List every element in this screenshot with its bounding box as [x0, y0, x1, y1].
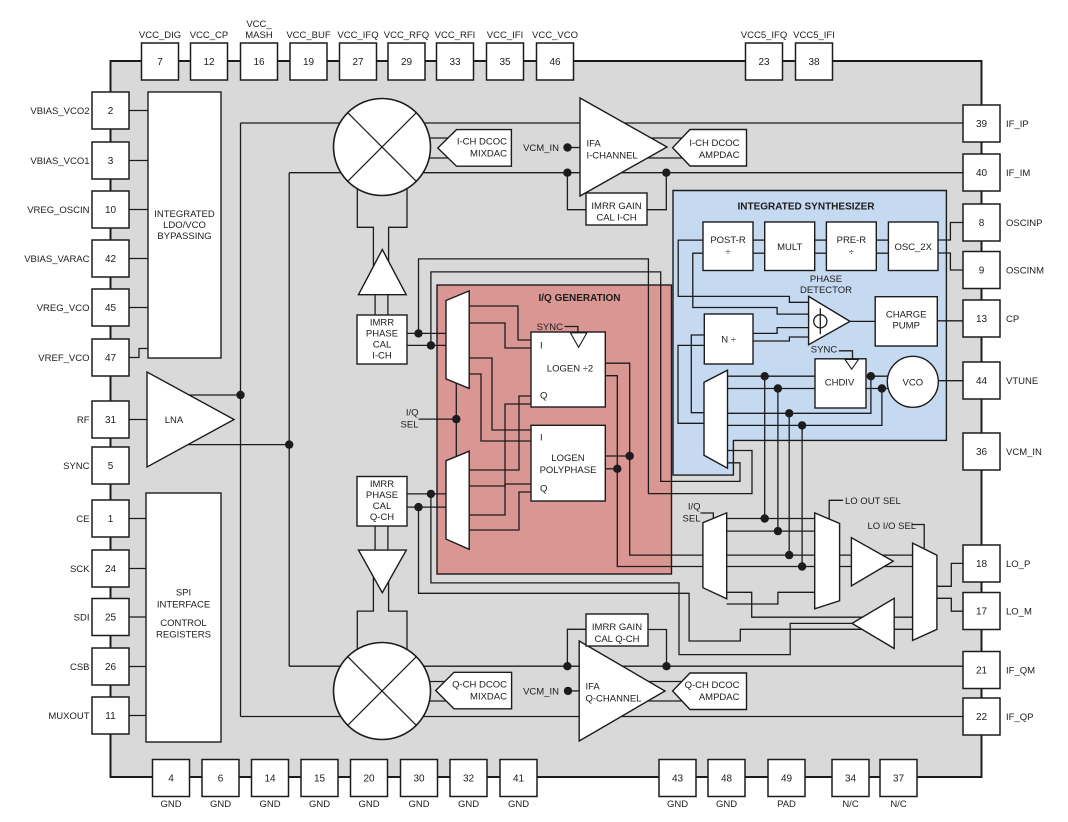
svg-text:SYNC: SYNC [537, 322, 564, 333]
svg-text:36: 36 [976, 447, 988, 458]
svg-text:VCC_RFQ: VCC_RFQ [384, 30, 429, 41]
svg-text:LO I/O SEL: LO I/O SEL [868, 521, 917, 532]
svg-text:IMRR GAIN: IMRR GAIN [591, 201, 641, 212]
svg-text:CONTROL: CONTROL [160, 618, 206, 629]
svg-text:VCC5_IFI: VCC5_IFI [793, 30, 835, 41]
svg-text:CE: CE [76, 514, 89, 525]
svg-text:VCM_IN: VCM_IN [523, 687, 559, 698]
svg-text:CAL: CAL [373, 340, 391, 351]
svg-text:LOGEN ÷2: LOGEN ÷2 [547, 364, 593, 375]
svg-text:VREG_VCO: VREG_VCO [37, 303, 90, 314]
svg-text:DETECTOR: DETECTOR [800, 285, 852, 296]
svg-text:POLYPHASE: POLYPHASE [540, 465, 597, 476]
svg-text:47: 47 [105, 353, 117, 364]
svg-text:OSCINM: OSCINM [1006, 266, 1044, 277]
svg-text:8: 8 [979, 218, 985, 229]
svg-text:34: 34 [845, 774, 857, 785]
svg-text:I-CH DCOC: I-CH DCOC [457, 137, 507, 148]
svg-text:GND: GND [408, 799, 429, 810]
svg-text:GND: GND [667, 799, 688, 810]
svg-text:I/Q: I/Q [406, 408, 419, 419]
svg-text:IF_QM: IF_QM [1006, 666, 1035, 677]
svg-text:N/C: N/C [890, 799, 907, 810]
svg-text:46: 46 [549, 57, 561, 68]
svg-text:VBIAS_VARAC: VBIAS_VARAC [24, 254, 89, 265]
svg-text:VTUNE: VTUNE [1006, 376, 1038, 387]
svg-text:17: 17 [976, 607, 988, 618]
svg-text:CSB: CSB [70, 662, 90, 673]
svg-text:IF_IM: IF_IM [1006, 168, 1030, 179]
svg-text:48: 48 [721, 774, 733, 785]
svg-text:BYPASSING: BYPASSING [157, 231, 211, 242]
svg-text:13: 13 [976, 314, 988, 325]
svg-text:IMRR: IMRR [370, 318, 394, 329]
svg-text:INTERFACE: INTERFACE [157, 600, 210, 611]
svg-text:CAL Q-CH: CAL Q-CH [594, 634, 639, 645]
svg-text:PHASE: PHASE [366, 490, 398, 501]
svg-text:Q: Q [540, 391, 547, 402]
svg-text:SEL: SEL [401, 420, 419, 431]
svg-text:VREF_VCO: VREF_VCO [38, 353, 89, 364]
svg-text:45: 45 [105, 303, 117, 314]
svg-text:23: 23 [758, 57, 770, 68]
svg-text:LOGEN: LOGEN [551, 453, 584, 464]
svg-text:INTEGRATED SYNTHESIZER: INTEGRATED SYNTHESIZER [737, 202, 875, 213]
svg-text:IMRR: IMRR [370, 479, 394, 490]
svg-text:14: 14 [264, 774, 276, 785]
svg-text:11: 11 [105, 711, 116, 722]
svg-text:PAD: PAD [777, 799, 796, 810]
svg-text:PUMP: PUMP [892, 321, 919, 332]
svg-text:SYNC: SYNC [63, 461, 90, 472]
svg-text:VCC_CP: VCC_CP [190, 30, 229, 41]
svg-text:40: 40 [976, 168, 988, 179]
svg-text:SPI: SPI [176, 588, 191, 599]
svg-text:Q-CH DCOC: Q-CH DCOC [452, 680, 507, 691]
svg-text:37: 37 [893, 774, 905, 785]
svg-text:19: 19 [303, 57, 315, 68]
svg-text:44: 44 [976, 376, 988, 387]
svg-text:MIXDAC: MIXDAC [470, 692, 507, 703]
svg-text:5: 5 [108, 461, 114, 472]
svg-text:VCC5_IFQ: VCC5_IFQ [741, 30, 787, 41]
svg-text:3: 3 [108, 156, 114, 167]
svg-text:4: 4 [168, 774, 174, 785]
svg-text:MULT: MULT [777, 242, 802, 253]
svg-text:I-CH DCOC: I-CH DCOC [689, 138, 739, 149]
svg-text:MUXOUT: MUXOUT [48, 711, 89, 722]
svg-text:VCC_IFQ: VCC_IFQ [337, 30, 378, 41]
svg-text:SEL: SEL [683, 514, 701, 525]
svg-text:VREG_OSCIN: VREG_OSCIN [27, 205, 89, 216]
svg-text:7: 7 [157, 57, 163, 68]
svg-text:VCC_BUF: VCC_BUF [286, 30, 331, 41]
svg-text:PHASE: PHASE [366, 329, 398, 340]
svg-text:1: 1 [108, 514, 114, 525]
svg-text:Q-CH DCOC: Q-CH DCOC [685, 680, 740, 691]
svg-text:REGISTERS: REGISTERS [156, 630, 211, 641]
svg-text:AMPDAC: AMPDAC [699, 150, 740, 161]
svg-text:GND: GND [309, 799, 330, 810]
svg-text:29: 29 [401, 57, 413, 68]
svg-text:CHARGE: CHARGE [886, 310, 927, 321]
svg-text:VCM_IN: VCM_IN [1006, 447, 1042, 458]
svg-text:IF_QP: IF_QP [1006, 712, 1033, 723]
svg-text:I: I [540, 433, 543, 444]
svg-text:MASH: MASH [245, 30, 273, 41]
svg-text:CAL: CAL [373, 501, 391, 512]
svg-text:38: 38 [808, 57, 820, 68]
svg-text:VBIAS_VCO2: VBIAS_VCO2 [30, 106, 89, 117]
svg-text:SYNC: SYNC [811, 345, 838, 356]
svg-text:VBIAS_VCO1: VBIAS_VCO1 [30, 156, 89, 167]
svg-text:I: I [540, 341, 543, 352]
svg-text:15: 15 [314, 774, 326, 785]
svg-text:VCC_DIG: VCC_DIG [139, 30, 181, 41]
svg-text:GND: GND [458, 799, 479, 810]
svg-text:18: 18 [976, 559, 988, 570]
svg-text:SCK: SCK [70, 564, 90, 575]
svg-text:21: 21 [976, 666, 988, 677]
svg-text:RF: RF [77, 415, 90, 426]
svg-text:IFA: IFA [586, 681, 601, 692]
svg-text:43: 43 [672, 774, 684, 785]
svg-text:24: 24 [105, 564, 117, 575]
svg-text:26: 26 [105, 662, 117, 673]
svg-text:CHDIV: CHDIV [825, 378, 855, 389]
svg-text:I/Q: I/Q [688, 502, 701, 513]
svg-text:25: 25 [105, 613, 117, 624]
svg-text:SDI: SDI [74, 613, 90, 624]
svg-text:÷: ÷ [849, 247, 854, 258]
svg-text:GND: GND [160, 799, 181, 810]
svg-text:VCC_RFI: VCC_RFI [435, 30, 476, 41]
svg-text:27: 27 [352, 57, 364, 68]
svg-text:MIXDAC: MIXDAC [470, 149, 507, 160]
svg-text:I-CHANNEL: I-CHANNEL [587, 150, 638, 161]
svg-text:LO_P: LO_P [1006, 559, 1030, 570]
svg-text:VCM_IN: VCM_IN [523, 143, 559, 154]
svg-text:31: 31 [105, 415, 117, 426]
svg-text:10: 10 [105, 205, 117, 216]
svg-text:VCO: VCO [903, 378, 924, 389]
svg-text:LDO/VCO: LDO/VCO [163, 220, 206, 231]
svg-text:N/C: N/C [842, 799, 859, 810]
svg-text:VCC_IFI: VCC_IFI [487, 30, 523, 41]
svg-text:20: 20 [363, 774, 375, 785]
svg-text:I-CH: I-CH [372, 351, 392, 362]
svg-text:GND: GND [508, 799, 529, 810]
svg-text:6: 6 [218, 774, 224, 785]
svg-text:39: 39 [976, 119, 988, 130]
svg-text:30: 30 [413, 774, 425, 785]
svg-text:VCC_: VCC_ [246, 19, 272, 30]
svg-text:IMRR GAIN: IMRR GAIN [592, 622, 642, 633]
svg-text:IFA: IFA [587, 138, 602, 149]
svg-text:16: 16 [253, 57, 265, 68]
svg-text:LNA: LNA [165, 415, 184, 426]
svg-text:42: 42 [105, 254, 117, 265]
svg-text:POST-R: POST-R [710, 235, 746, 246]
svg-text:GND: GND [716, 799, 737, 810]
svg-text:CP: CP [1006, 314, 1019, 325]
svg-text:22: 22 [976, 712, 988, 723]
svg-text:12: 12 [203, 57, 215, 68]
svg-text:41: 41 [513, 774, 525, 785]
svg-text:LO_M: LO_M [1006, 607, 1032, 618]
svg-text:Q: Q [540, 484, 547, 495]
svg-text:35: 35 [499, 57, 511, 68]
svg-text:33: 33 [449, 57, 461, 68]
svg-text:Q-CHANNEL: Q-CHANNEL [586, 693, 642, 704]
svg-text:32: 32 [463, 774, 475, 785]
svg-text:INTEGRATED: INTEGRATED [154, 209, 215, 220]
svg-text:IF_IP: IF_IP [1006, 119, 1029, 130]
svg-text:Q-CH: Q-CH [370, 512, 394, 523]
svg-text:2: 2 [108, 106, 114, 117]
svg-text:GND: GND [210, 799, 231, 810]
svg-text:CAL I-CH: CAL I-CH [596, 213, 636, 224]
svg-text:N ÷: N ÷ [721, 335, 736, 346]
svg-text:PRE-R: PRE-R [837, 235, 867, 246]
svg-text:LO OUT SEL: LO OUT SEL [845, 496, 901, 507]
svg-text:OSCINP: OSCINP [1006, 218, 1042, 229]
svg-text:49: 49 [781, 774, 793, 785]
svg-text:÷: ÷ [725, 247, 730, 258]
svg-text:GND: GND [259, 799, 280, 810]
svg-text:VCC_VCO: VCC_VCO [532, 30, 578, 41]
svg-text:I/Q GENERATION: I/Q GENERATION [538, 293, 620, 304]
svg-text:PHASE: PHASE [810, 274, 842, 285]
svg-text:9: 9 [979, 266, 985, 277]
svg-text:GND: GND [358, 799, 379, 810]
svg-text:OSC_2X: OSC_2X [894, 242, 932, 253]
svg-text:AMPDAC: AMPDAC [699, 692, 740, 703]
